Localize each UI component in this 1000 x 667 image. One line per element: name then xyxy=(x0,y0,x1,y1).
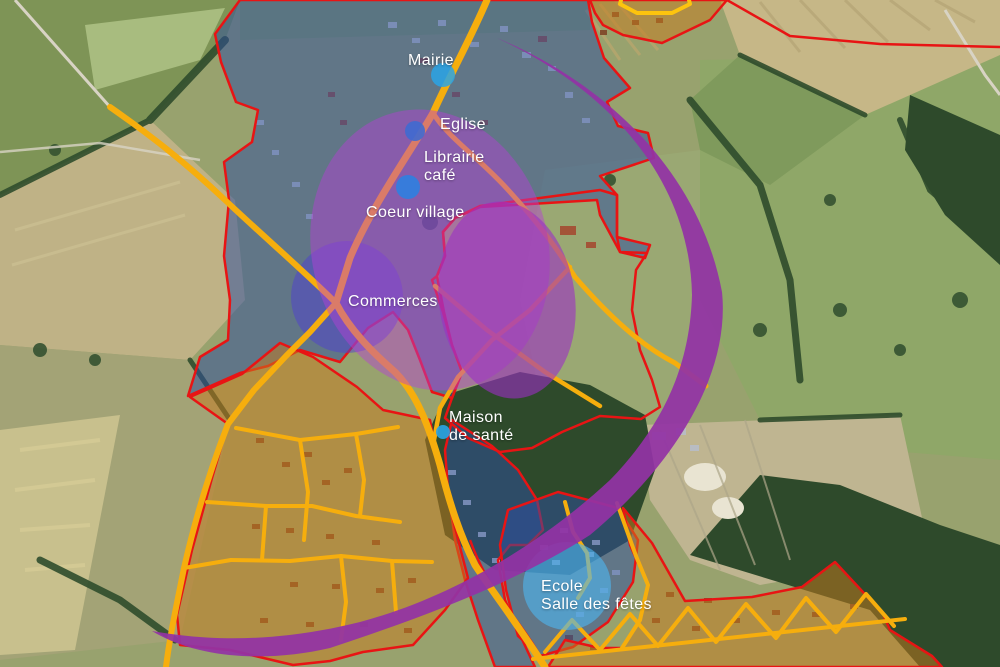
poi-maison-sante-circle xyxy=(436,425,450,439)
poi-librairie-circle xyxy=(396,175,420,199)
label-mairie-text: Mairie xyxy=(408,52,454,69)
label-maison-de-sante: Maison de santé xyxy=(449,409,514,445)
label-coeur-village-text: Coeur village xyxy=(366,204,465,221)
label-eglise: Eglise xyxy=(440,116,486,134)
label-maison-line2: de santé xyxy=(449,427,514,445)
aerial-map xyxy=(0,0,1000,667)
label-commerces-text: Commerces xyxy=(348,293,438,310)
label-librairie: Librairie café xyxy=(424,149,485,185)
label-eglise-text: Eglise xyxy=(440,116,486,133)
label-ecole: Ecole Salle des fêtes xyxy=(541,578,652,614)
label-commerces: Commerces xyxy=(348,293,438,311)
poi-eglise-circle xyxy=(405,121,425,141)
map-canvas: Mairie Eglise Librairie café Coeur villa… xyxy=(0,0,1000,667)
label-coeur-village: Coeur village xyxy=(366,204,465,222)
label-librairie-line2: café xyxy=(424,167,485,185)
label-ecole-line1: Ecole xyxy=(541,578,652,596)
label-librairie-line1: Librairie xyxy=(424,149,485,167)
label-ecole-line2: Salle des fêtes xyxy=(541,596,652,614)
label-mairie: Mairie xyxy=(408,52,454,70)
label-maison-line1: Maison xyxy=(449,409,514,427)
